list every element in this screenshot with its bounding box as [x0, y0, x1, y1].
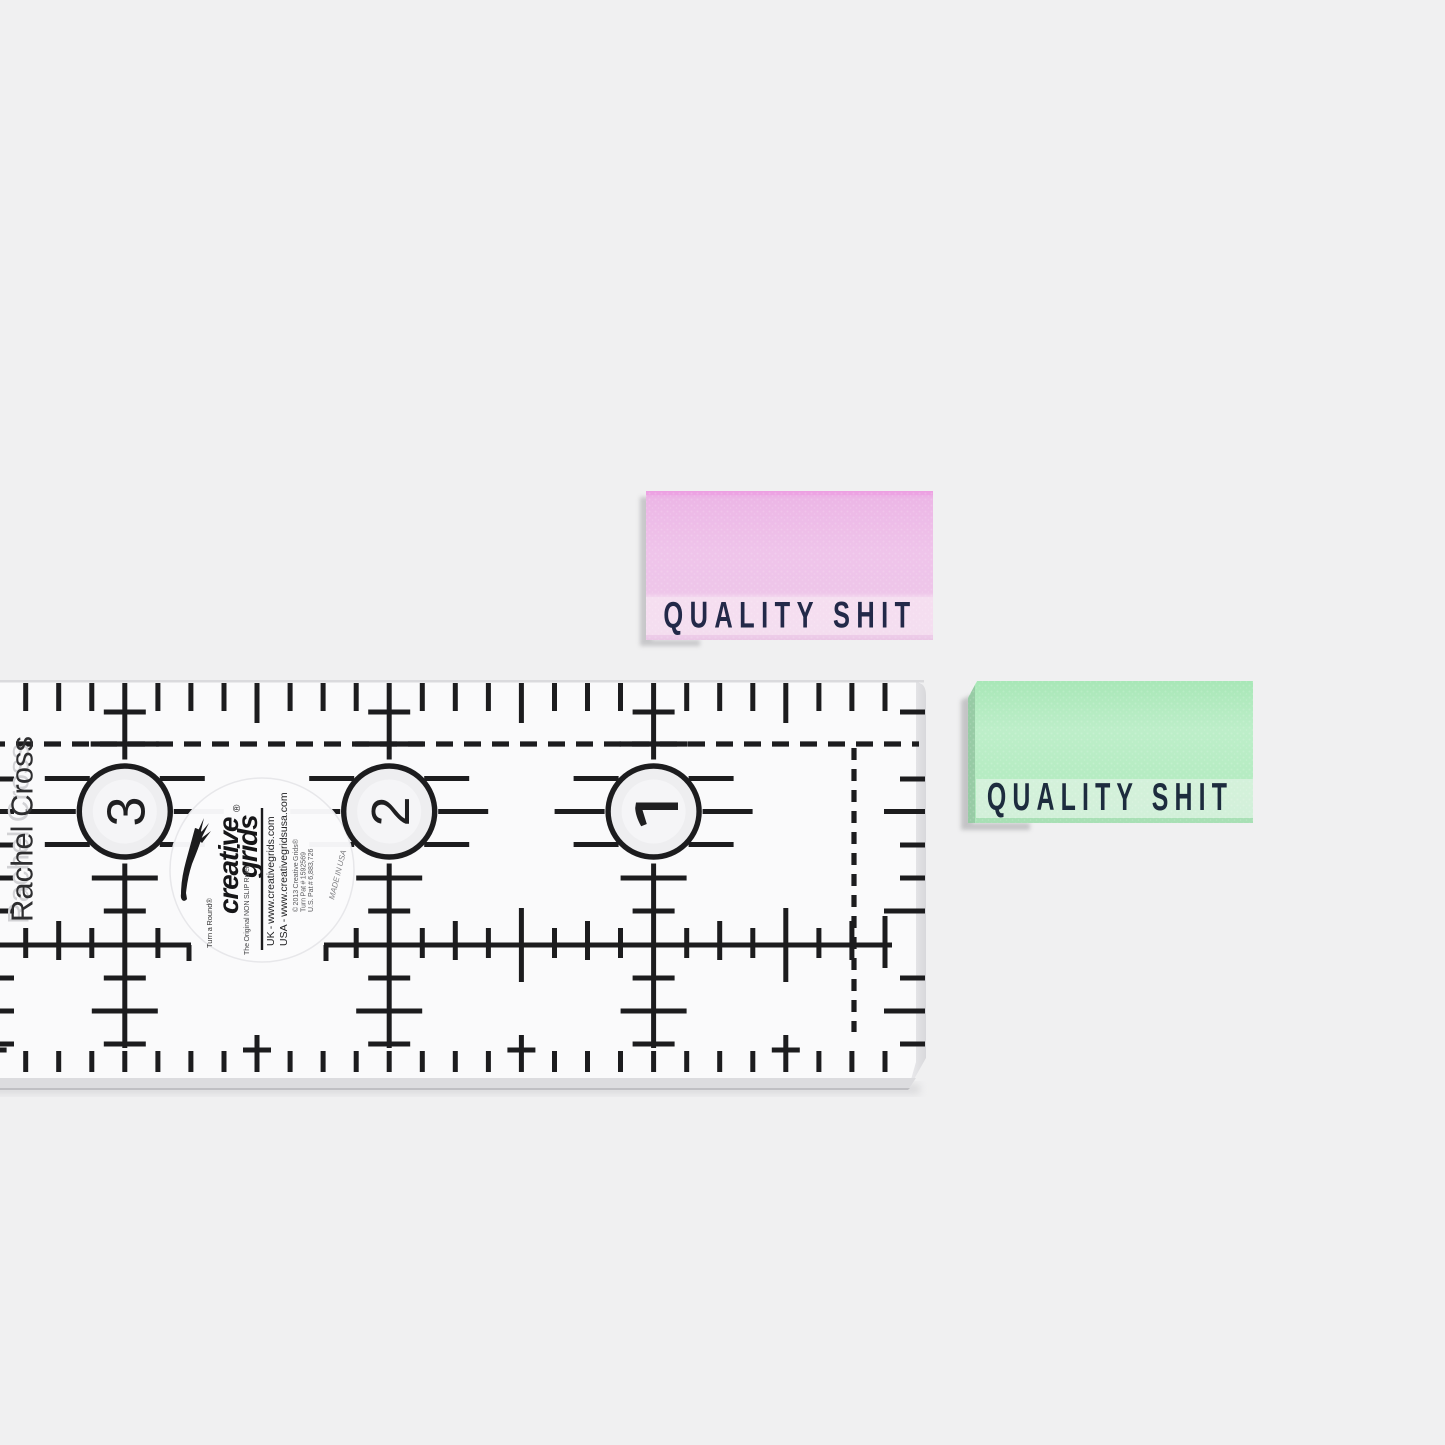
svg-text:Rachel Cross: Rachel Cross — [5, 736, 40, 922]
svg-text:QUALITY SHIT: QUALITY SHIT — [987, 776, 1233, 819]
svg-text:QUALITY SHIT: QUALITY SHIT — [663, 594, 916, 636]
svg-text:UK - www.creativegrids.com: UK - www.creativegrids.com — [265, 816, 277, 946]
svg-text:3: 3 — [97, 796, 157, 826]
svg-text:USA - www.creativegridsusa.com: USA - www.creativegridsusa.com — [278, 792, 290, 946]
svg-text:®: ® — [232, 804, 243, 812]
svg-text:The Original NON SLIP Ruler: The Original NON SLIP Ruler — [244, 865, 251, 955]
svg-text:© 2013 Creative Grids®: © 2013 Creative Grids® — [292, 838, 300, 912]
svg-text:2: 2 — [361, 796, 421, 826]
svg-text:U.S. Pat # 6,883,726: U.S. Pat # 6,883,726 — [308, 849, 315, 912]
svg-text:Turn Pat # 1592569: Turn Pat # 1592569 — [301, 852, 308, 912]
